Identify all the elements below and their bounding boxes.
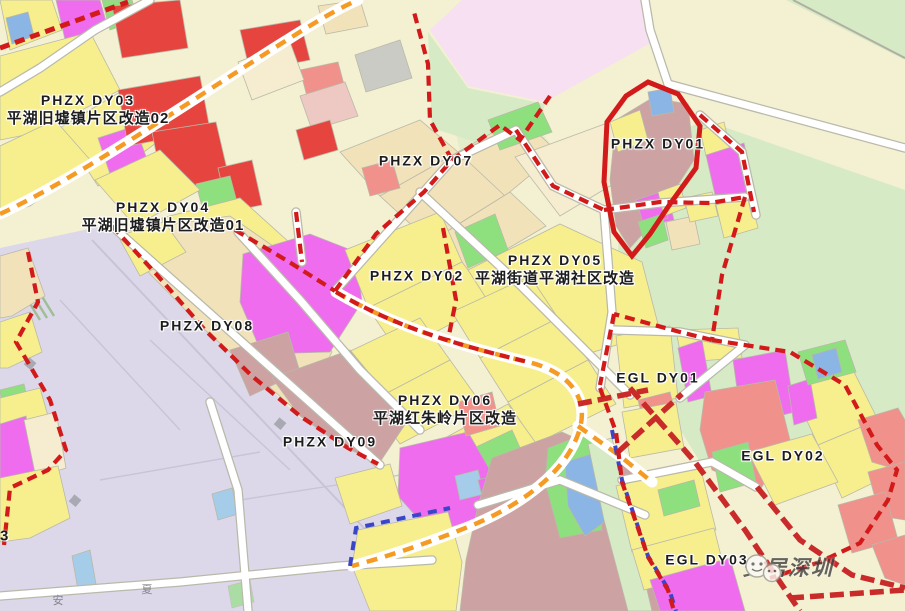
zone-label-egl-dy03: EGL DY03 [665,551,748,569]
road-name-char-b: 夏 [142,581,153,597]
watermark: 安居深圳 [742,552,834,582]
zone-label-phzx-dy09: PHZX DY09 [283,433,377,451]
zone-label-phzx-dy02: PHZX DY02 [370,267,464,285]
road-name-char-a: 安 [53,592,64,608]
zone-label-phzx-dy05: PHZX DY05 平湖街道平湖社区改造 [475,252,635,288]
zone-label-egl-dy02: EGL DY02 [741,447,824,465]
zone-label-phzx-dy08: PHZX DY08 [160,317,254,335]
zone-label-phzx-dy07: PHZX DY07 [379,152,473,170]
planning-map-canvas[interactable]: PHZX DY03 平湖旧墟镇片区改造02 PHZX DY04 平湖旧墟镇片区改… [0,0,905,611]
zone-label-egl-dy01: EGL DY01 [616,369,699,387]
clipped-zone-label: 3 [0,528,8,545]
wechat-logo-icon [742,552,784,586]
zone-label-phzx-dy01: PHZX DY01 [611,135,705,153]
zone-label-phzx-dy06: PHZX DY06 平湖红朱岭片区改造 [373,392,517,428]
zone-label-phzx-dy03: PHZX DY03 平湖旧墟镇片区改造02 [7,92,170,128]
zone-label-phzx-dy04: PHZX DY04 平湖旧墟镇片区改造01 [82,199,245,235]
